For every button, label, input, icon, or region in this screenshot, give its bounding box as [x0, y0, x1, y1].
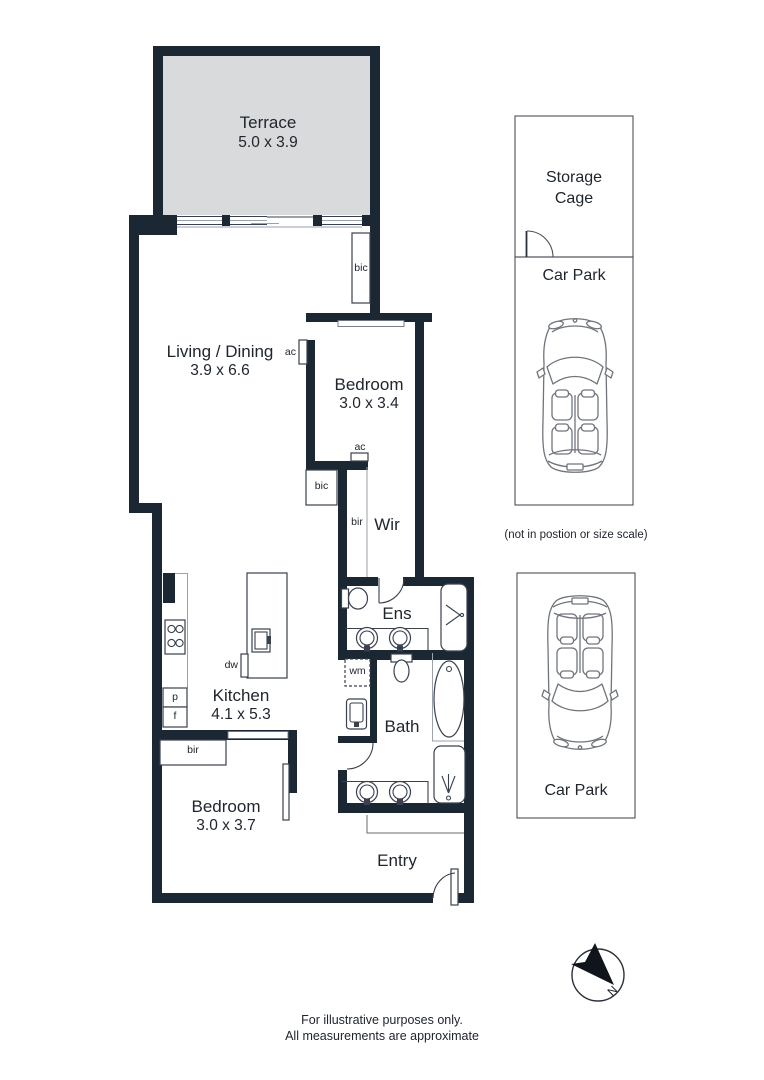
wall-segment [338, 461, 347, 658]
wall-segment [152, 503, 162, 903]
dishwasher-box [241, 654, 248, 677]
bedroom2-dims: 3.0 x 3.7 [176, 817, 276, 836]
island-bench [247, 573, 287, 678]
bath-vanity [342, 782, 428, 805]
basin-icon [357, 628, 378, 652]
car-icon [537, 319, 613, 473]
basin-icon [390, 628, 411, 652]
basin-icon [357, 782, 378, 806]
ens-door-arc [379, 578, 404, 603]
car-park-top-label: Car Park [515, 266, 633, 287]
wall-segment [313, 215, 322, 226]
cooktop-icon [165, 620, 185, 654]
storage-cage-label: Storage Cage [515, 168, 633, 210]
terrace-windows [177, 215, 362, 227]
wall-segment [306, 461, 368, 470]
wall-segment [152, 893, 433, 903]
entry-label: Entry [371, 851, 423, 871]
wall-segment [403, 577, 467, 586]
car-park-top-box [515, 257, 633, 505]
compass-needle [571, 943, 614, 985]
cage-door-arc [527, 231, 553, 257]
wall-segment [415, 313, 424, 577]
wall-segment [370, 46, 380, 313]
living-label: Living / Dining [150, 342, 290, 362]
shower-icon [434, 746, 465, 803]
wall-segment [152, 730, 297, 740]
bic-living-label: bic [352, 262, 370, 275]
terrace-dims: 5.0 x 3.9 [180, 134, 356, 153]
bedroom2-label: Bedroom [176, 797, 276, 817]
wall-segment [288, 730, 297, 793]
disclaimer-line2: All measurements are approximate [232, 1029, 532, 1044]
parking-note: (not in postion or size scale) [460, 529, 692, 543]
bathtub-icon [434, 661, 464, 737]
wall-segment [129, 215, 139, 512]
wir-label: Wir [362, 515, 412, 535]
wall-segment [306, 313, 432, 322]
ens-vanity [345, 629, 428, 651]
wm-label: wm [345, 665, 370, 678]
wall-segment [153, 46, 163, 218]
bedroom1-label: Bedroom [319, 375, 419, 395]
bic-hall-label: bic [306, 480, 337, 493]
wall-segment [222, 215, 230, 226]
entry-niche [367, 815, 464, 833]
compass-north-label: N [606, 984, 620, 998]
living-dims: 3.9 x 6.6 [150, 362, 290, 381]
bedroom1-dims: 3.0 x 3.4 [319, 395, 419, 414]
wall-segment [156, 46, 380, 56]
wall-segment [306, 340, 315, 470]
compass-circle [572, 949, 624, 1001]
pantry-label: p [163, 691, 187, 704]
laundry-trough-icon [347, 699, 367, 729]
ac-bedroom-unit [351, 453, 368, 461]
entry-door-leaf [451, 869, 458, 905]
fridge-label: f [163, 710, 187, 723]
car-icon [542, 596, 618, 750]
bir-wir-label: bir [345, 516, 369, 529]
wall-segment [338, 650, 474, 660]
dw-label: dw [220, 659, 238, 672]
wall-segment [347, 577, 378, 586]
compass: N [571, 943, 624, 1001]
wall-segment [338, 803, 474, 813]
bath-label: Bath [377, 717, 427, 737]
ac-bedroom-label: ac [348, 441, 372, 454]
basin-icon [390, 782, 411, 806]
bath-door-arc [347, 743, 373, 769]
wall-segment [370, 650, 377, 743]
car-park-bottom-label: Car Park [517, 781, 635, 802]
sink-icon [252, 629, 271, 652]
ens-label: Ens [372, 604, 422, 624]
wall-segment [362, 215, 380, 226]
wall-segment [458, 893, 474, 903]
terrace-label: Terrace [180, 113, 356, 133]
kitchen-dims: 4.1 x 5.3 [191, 706, 291, 725]
entry-door-arc [433, 873, 455, 898]
ac-living-label: ac [272, 346, 296, 359]
kitchen-label: Kitchen [191, 686, 291, 706]
bir-bedroom2-label: bir [160, 744, 226, 757]
wall-segment [338, 736, 377, 743]
wall-segment [464, 577, 474, 903]
disclaimer-line1: For illustrative purposes only. [232, 1013, 532, 1028]
parking-area [515, 116, 635, 818]
floorplan-canvas: N Terrace 5.0 x 3.9 Living / Dining 3.9 … [0, 0, 764, 1080]
